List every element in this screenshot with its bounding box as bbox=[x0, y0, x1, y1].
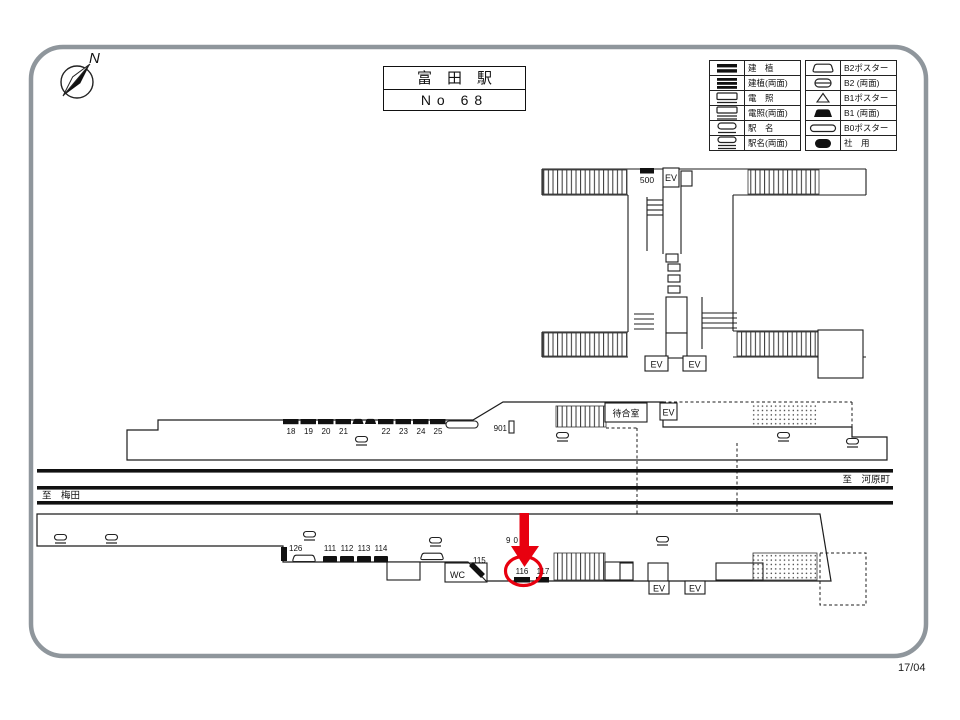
elevator-label: EV bbox=[653, 584, 665, 594]
legend-row: B1ポスター bbox=[805, 91, 897, 106]
elevator-label: EV bbox=[689, 584, 701, 594]
marker-116-bar bbox=[514, 577, 530, 583]
station-title: 富 田 駅 bbox=[383, 66, 526, 91]
legend-row: B0ポスター bbox=[805, 121, 897, 136]
densho-double-icon bbox=[710, 106, 745, 120]
marker-18-label: 18 bbox=[287, 427, 296, 436]
marker-21-label: 21 bbox=[339, 427, 348, 436]
date-code: 17/04 bbox=[898, 662, 953, 674]
legend-label: B1 (両面) bbox=[841, 106, 896, 120]
marker-24-label: 24 bbox=[417, 427, 426, 436]
marker-126-label: 126 bbox=[289, 544, 303, 553]
b2-poster-marker bbox=[421, 553, 443, 559]
stairs-hatch-upper-platform bbox=[556, 406, 606, 427]
elevator-label: EV bbox=[650, 360, 662, 370]
marker-114-label: 114 bbox=[375, 544, 388, 553]
b0-poster-icon bbox=[806, 121, 841, 135]
marker-114-bar bbox=[374, 556, 388, 563]
legend-left-table: 建 植 建植(両面) 電 照 電照(両面) 駅 名 駅名(両面) bbox=[709, 60, 801, 151]
b2-poster-marker bbox=[293, 555, 315, 561]
legend-row: 建植(両面) bbox=[709, 76, 801, 91]
elevator-label: EV bbox=[688, 360, 700, 370]
overpass bbox=[542, 168, 866, 378]
legend-label: 駅 名 bbox=[745, 121, 800, 135]
ekimei-icon bbox=[710, 121, 745, 135]
marker-113-bar bbox=[357, 556, 371, 563]
marker-116-label: 116 bbox=[516, 567, 529, 576]
marker-901-box bbox=[509, 421, 514, 433]
ekimei-double-icon bbox=[710, 136, 745, 150]
legend-row: NO 社 用 bbox=[805, 136, 897, 151]
legend-row: B1 (両面) bbox=[805, 106, 897, 121]
overpass-annex bbox=[818, 330, 863, 378]
stairs-hatch-bottom-right bbox=[737, 332, 818, 356]
lower-platform bbox=[37, 514, 866, 605]
marker-20-label: 20 bbox=[322, 427, 331, 436]
legend-row: 建 植 bbox=[709, 60, 801, 76]
kenchiku-icon bbox=[710, 61, 745, 75]
legend-label: 建 植 bbox=[745, 61, 800, 75]
b1-double-marker bbox=[352, 419, 363, 424]
legend-label: 社 用 bbox=[841, 136, 896, 150]
stairs-hatch-bottom-left bbox=[543, 333, 627, 356]
marker-126-bar bbox=[281, 547, 287, 561]
legend-row: 電 照 bbox=[709, 91, 801, 106]
marker-23-label: 23 bbox=[399, 427, 408, 436]
elevator-label: EV bbox=[662, 408, 674, 418]
b1-poster-icon bbox=[806, 91, 841, 105]
b2-double-icon bbox=[806, 76, 841, 90]
legend-label: B0ポスター bbox=[841, 121, 896, 135]
legend-label: 電照(両面) bbox=[745, 106, 800, 120]
tracks bbox=[37, 469, 893, 505]
direction-umeda-label: 至 梅田 bbox=[42, 490, 80, 502]
compass-icon: N bbox=[61, 50, 100, 98]
elevator-shaft bbox=[648, 563, 668, 581]
marker-115-label: 115 bbox=[473, 556, 486, 565]
waiting-room-label: 待合室 bbox=[612, 408, 639, 419]
company-use-icon: NO bbox=[806, 136, 841, 150]
marker-111-bar bbox=[323, 556, 337, 563]
legend-row: 電照(両面) bbox=[709, 106, 801, 121]
legend-label: 駅名(両面) bbox=[745, 136, 800, 150]
highlight-arrow-shaft bbox=[520, 513, 530, 548]
marker-117-label: 117 bbox=[537, 567, 550, 576]
marker-19-label: 19 bbox=[304, 427, 313, 436]
compass-n-label: N bbox=[89, 50, 100, 67]
title-box: 富 田 駅 No 68 bbox=[383, 66, 526, 111]
marker-901-label: 901 bbox=[494, 424, 508, 433]
b1-double-marker bbox=[365, 419, 376, 424]
toilet-label: WC bbox=[450, 570, 465, 580]
b1-double-icon bbox=[806, 106, 841, 120]
stairs-hatch-top-left bbox=[543, 170, 627, 194]
marker-22-label: 22 bbox=[382, 427, 391, 436]
legend-row: 駅名(両面) bbox=[709, 136, 801, 151]
b2-poster-icon bbox=[806, 61, 841, 75]
legend-label: 電 照 bbox=[745, 91, 800, 105]
direction-kawaramachi-label: 至 河原町 bbox=[842, 474, 890, 486]
legend-label: B2 (両面) bbox=[841, 76, 896, 90]
marker-500-label: 500 bbox=[640, 175, 654, 185]
legend-label: B2ポスター bbox=[841, 61, 896, 75]
marker-113-label: 113 bbox=[358, 544, 371, 553]
stairs-hatch-top-right bbox=[748, 170, 819, 194]
legend-label: B1ポスター bbox=[841, 91, 896, 105]
marker-112-bar bbox=[340, 556, 354, 563]
legend-row: B2ポスター bbox=[805, 60, 897, 76]
marker-500-bar bbox=[640, 168, 654, 174]
stairs-hatch-lower-platform bbox=[554, 553, 605, 580]
kenchiku-double-icon bbox=[710, 76, 745, 90]
legend-label: 建植(両面) bbox=[745, 76, 800, 90]
station-map-page: N bbox=[0, 0, 960, 720]
legend-row: B2 (両面) bbox=[805, 76, 897, 91]
marker-25-label: 25 bbox=[434, 427, 443, 436]
dotted-area-lower bbox=[753, 553, 817, 580]
dotted-area-upper bbox=[752, 403, 817, 427]
b0-poster-marker bbox=[446, 421, 478, 428]
legend-right-table: B2ポスター B2 (両面) B1ポスター B1 (両面) B0ポスター NO … bbox=[805, 60, 897, 151]
stairwell-box bbox=[387, 562, 420, 580]
elevator-label: EV bbox=[665, 173, 677, 183]
legend-row: 駅 名 bbox=[709, 121, 801, 136]
map-number: No 68 bbox=[383, 89, 526, 111]
marker-111-label: 111 bbox=[324, 544, 337, 553]
densho-icon bbox=[710, 91, 745, 105]
no-badge: NO bbox=[818, 141, 828, 148]
marker-112-label: 112 bbox=[341, 544, 354, 553]
